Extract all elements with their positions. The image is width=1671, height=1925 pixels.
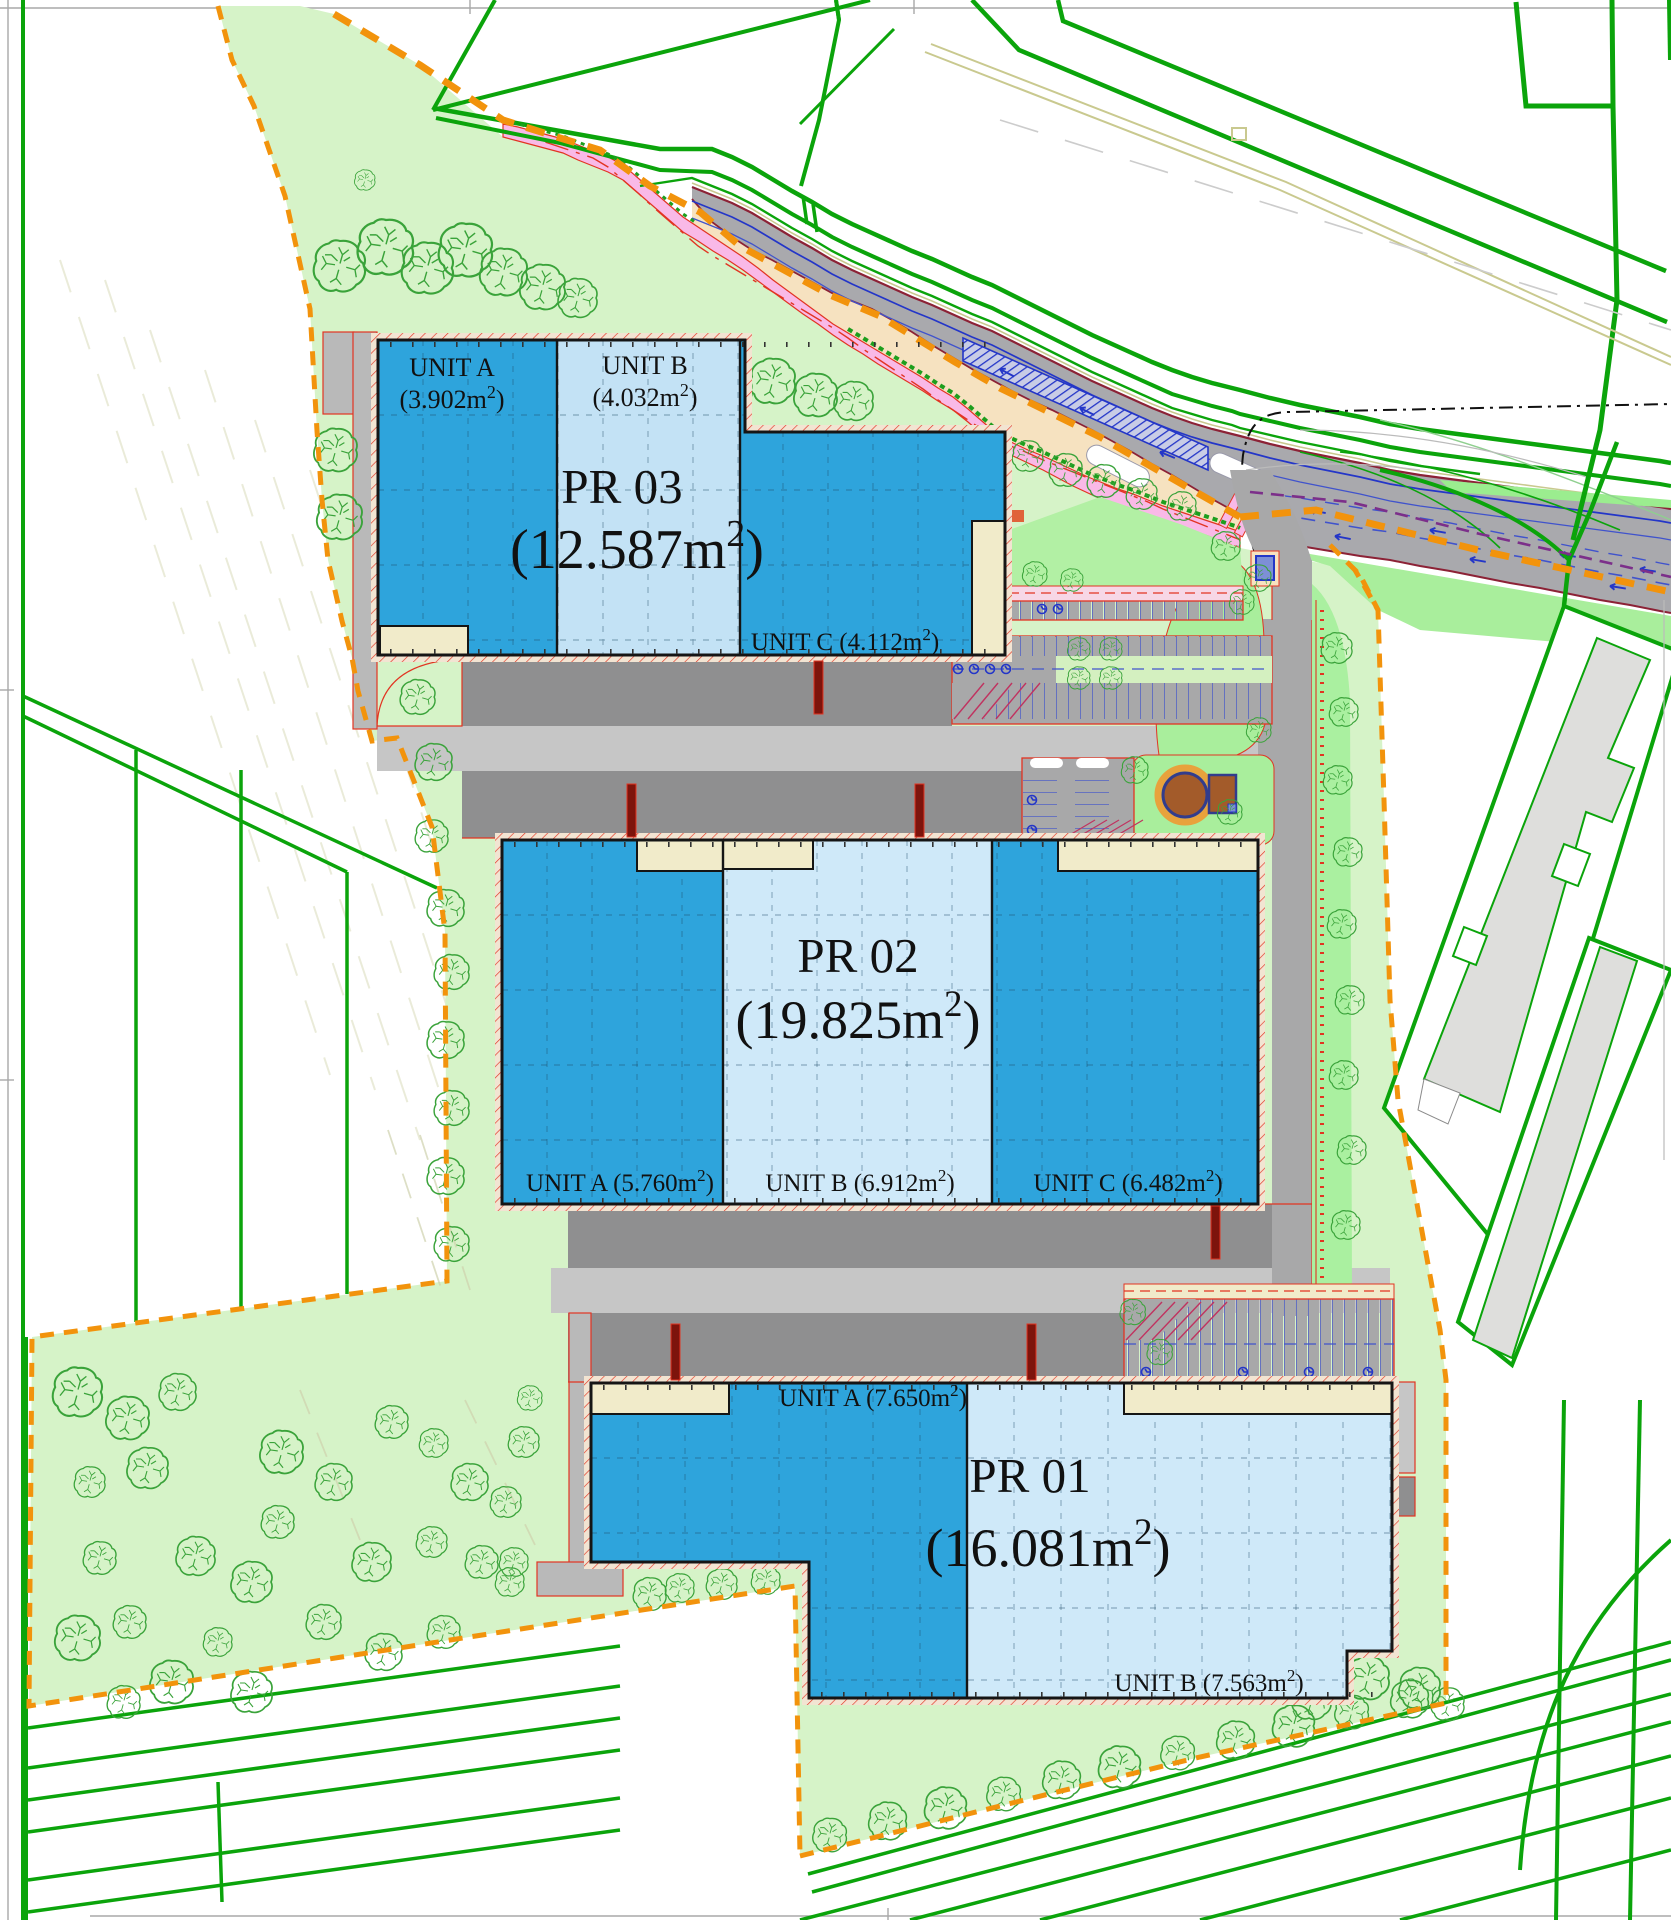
svg-text:UNIT A: UNIT A <box>409 353 495 382</box>
svg-text:(12.587m2): (12.587m2) <box>510 513 764 581</box>
svg-text:PR 01: PR 01 <box>969 1448 1090 1503</box>
svg-text:UNIT B (6.912m2): UNIT B (6.912m2) <box>765 1166 954 1197</box>
svg-text:(16.081m2): (16.081m2) <box>926 1512 1171 1578</box>
svg-text:UNIT C (6.482m2): UNIT C (6.482m2) <box>1033 1166 1222 1197</box>
svg-text:UNIT C (4.112m2): UNIT C (4.112m2) <box>751 625 939 656</box>
svg-text:UNIT B: UNIT B <box>602 351 687 380</box>
svg-text:UNIT B (7.563m2): UNIT B (7.563m2) <box>1114 1666 1303 1697</box>
svg-text:(19.825m2): (19.825m2) <box>736 984 981 1050</box>
svg-text:UNIT A (5.760m2): UNIT A (5.760m2) <box>526 1166 714 1197</box>
svg-text:UNIT A (7.650m2): UNIT A (7.650m2) <box>779 1381 967 1412</box>
svg-text:PR 03: PR 03 <box>561 459 682 514</box>
svg-text:PR 02: PR 02 <box>797 928 918 983</box>
